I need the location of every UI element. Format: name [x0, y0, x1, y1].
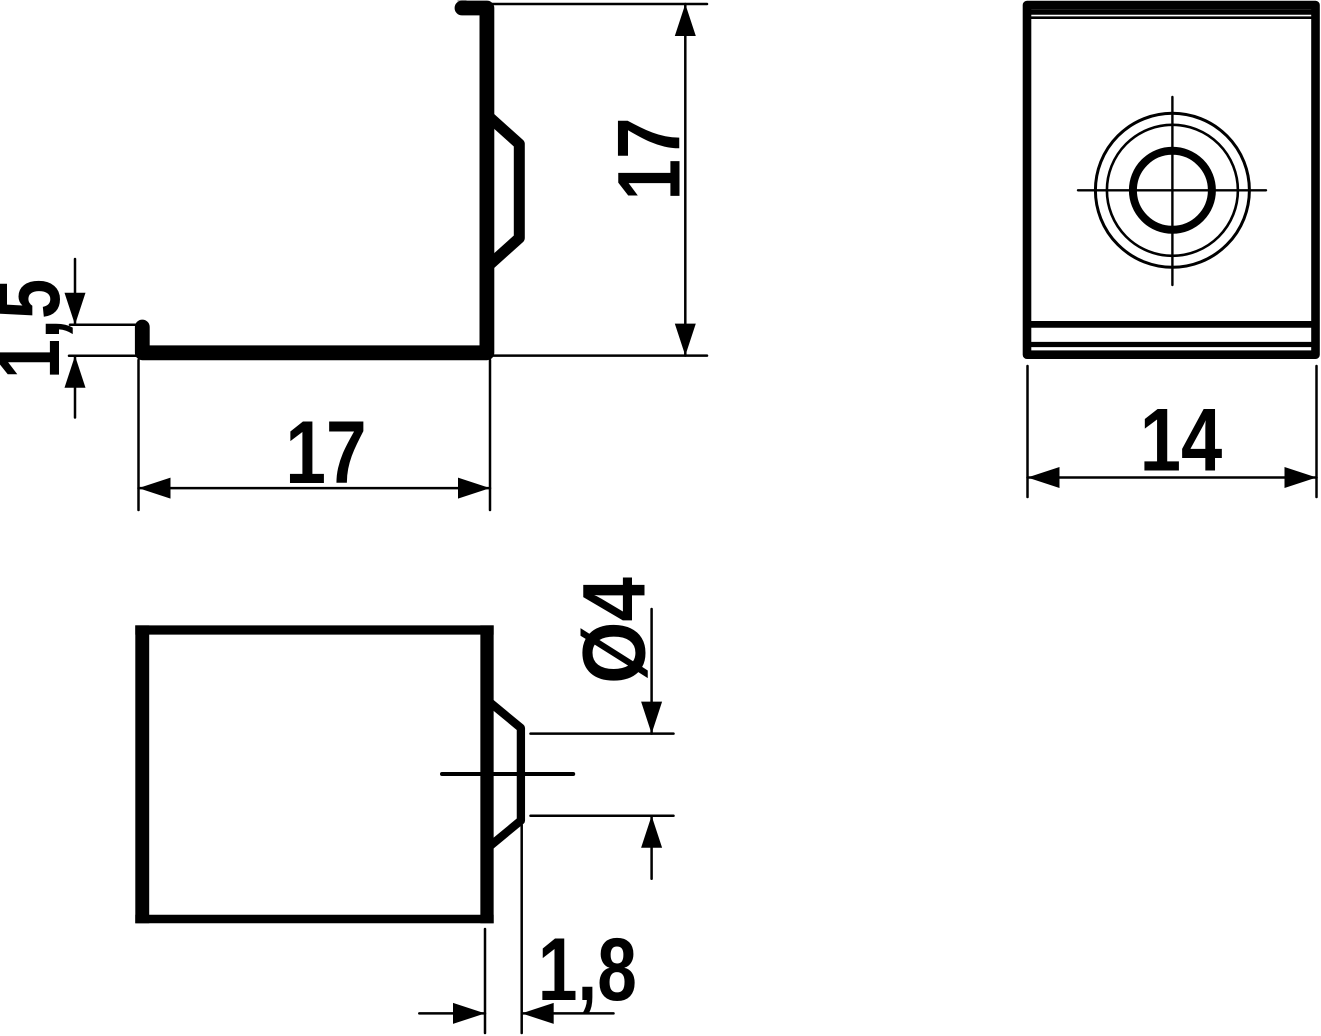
- svg-text:Ø4: Ø4: [564, 577, 664, 684]
- svg-text:14: 14: [1140, 391, 1223, 490]
- svg-text:1,8: 1,8: [538, 920, 637, 1019]
- svg-text:17: 17: [285, 403, 366, 503]
- svg-text:17: 17: [600, 117, 699, 200]
- svg-text:1,5: 1,5: [0, 279, 79, 379]
